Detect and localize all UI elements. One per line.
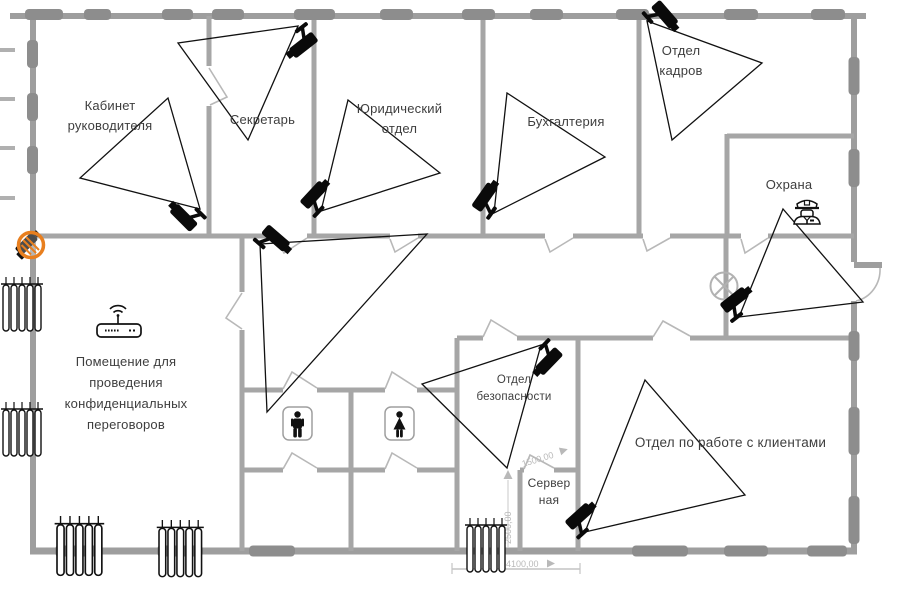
cctv-camera-icon (470, 178, 509, 221)
room-label-line: Охрана (741, 175, 837, 195)
male-wc-icon (283, 407, 312, 440)
room-label-line: безопасности (452, 389, 576, 406)
cctv-camera-icon (252, 223, 294, 264)
radiator-icon (55, 516, 105, 575)
room-label-line: Юридический (332, 99, 467, 119)
room-label-hr: Отдел кадров (633, 41, 729, 81)
room-label-secretary: Секретарь (205, 110, 320, 130)
no-camera-icon (13, 229, 44, 260)
cctv-camera-icon (641, 0, 682, 40)
room-label-line: Отдел по работе с клиентами (588, 433, 873, 454)
radiator-icon (465, 518, 507, 572)
wifi-router-icon (97, 306, 141, 337)
room-label-line: отдел (332, 119, 467, 139)
room-label-line: Бухгалтерия (498, 112, 634, 132)
room-label-line: конфиденциальных (28, 393, 224, 414)
radiator-icon (157, 520, 204, 577)
room-label-line: Кабинет (35, 96, 185, 116)
camera-fov-cone (422, 345, 541, 468)
floor-plan-svg: 4100,00 2500,00 1500,00 (0, 0, 908, 589)
room-label-line: переговоров (28, 414, 224, 435)
security-guard-icon (794, 201, 820, 225)
cctv-camera-icon (166, 192, 208, 234)
room-label-line: руководителя (35, 116, 185, 136)
window-blocks (25, 9, 860, 557)
camera-fov-cone (585, 380, 745, 532)
camera-fov-cone (494, 93, 605, 213)
room-label-clients: Отдел по работе с клиентами (588, 433, 873, 454)
room-label-line: Помещение для (28, 351, 224, 372)
cctv-camera-icon (298, 177, 339, 219)
dimension-bottom-width: 4100,00 (506, 559, 539, 569)
radiator-icon (1, 277, 43, 331)
room-label-line: ная (518, 492, 580, 509)
floor-plan: 4100,00 2500,00 1500,00 (0, 0, 908, 589)
room-label-line: Отдел (633, 41, 729, 61)
room-label-server: Сервер ная (518, 475, 580, 509)
room-label-line: Сервер (518, 475, 580, 492)
female-wc-icon (385, 407, 414, 440)
left-wall-ticks (0, 48, 15, 200)
room-label-line: проведения (28, 372, 224, 393)
room-label-guard: Охрана (741, 175, 837, 195)
room-label-security: Отдел безопасности (452, 372, 576, 405)
room-label-confidential: Помещение для проведения конфиденциальны… (28, 351, 224, 435)
room-label-line: кадров (633, 61, 729, 81)
room-label-line: Отдел (452, 372, 576, 389)
room-label-accounting: Бухгалтерия (498, 112, 634, 132)
room-label-director: Кабинет руководителя (35, 96, 185, 136)
camera-fov-cones (80, 21, 863, 532)
camera-fov-cone (739, 209, 863, 317)
room-label-line: Секретарь (205, 110, 320, 130)
room-label-legal: Юридический отдел (332, 99, 467, 139)
